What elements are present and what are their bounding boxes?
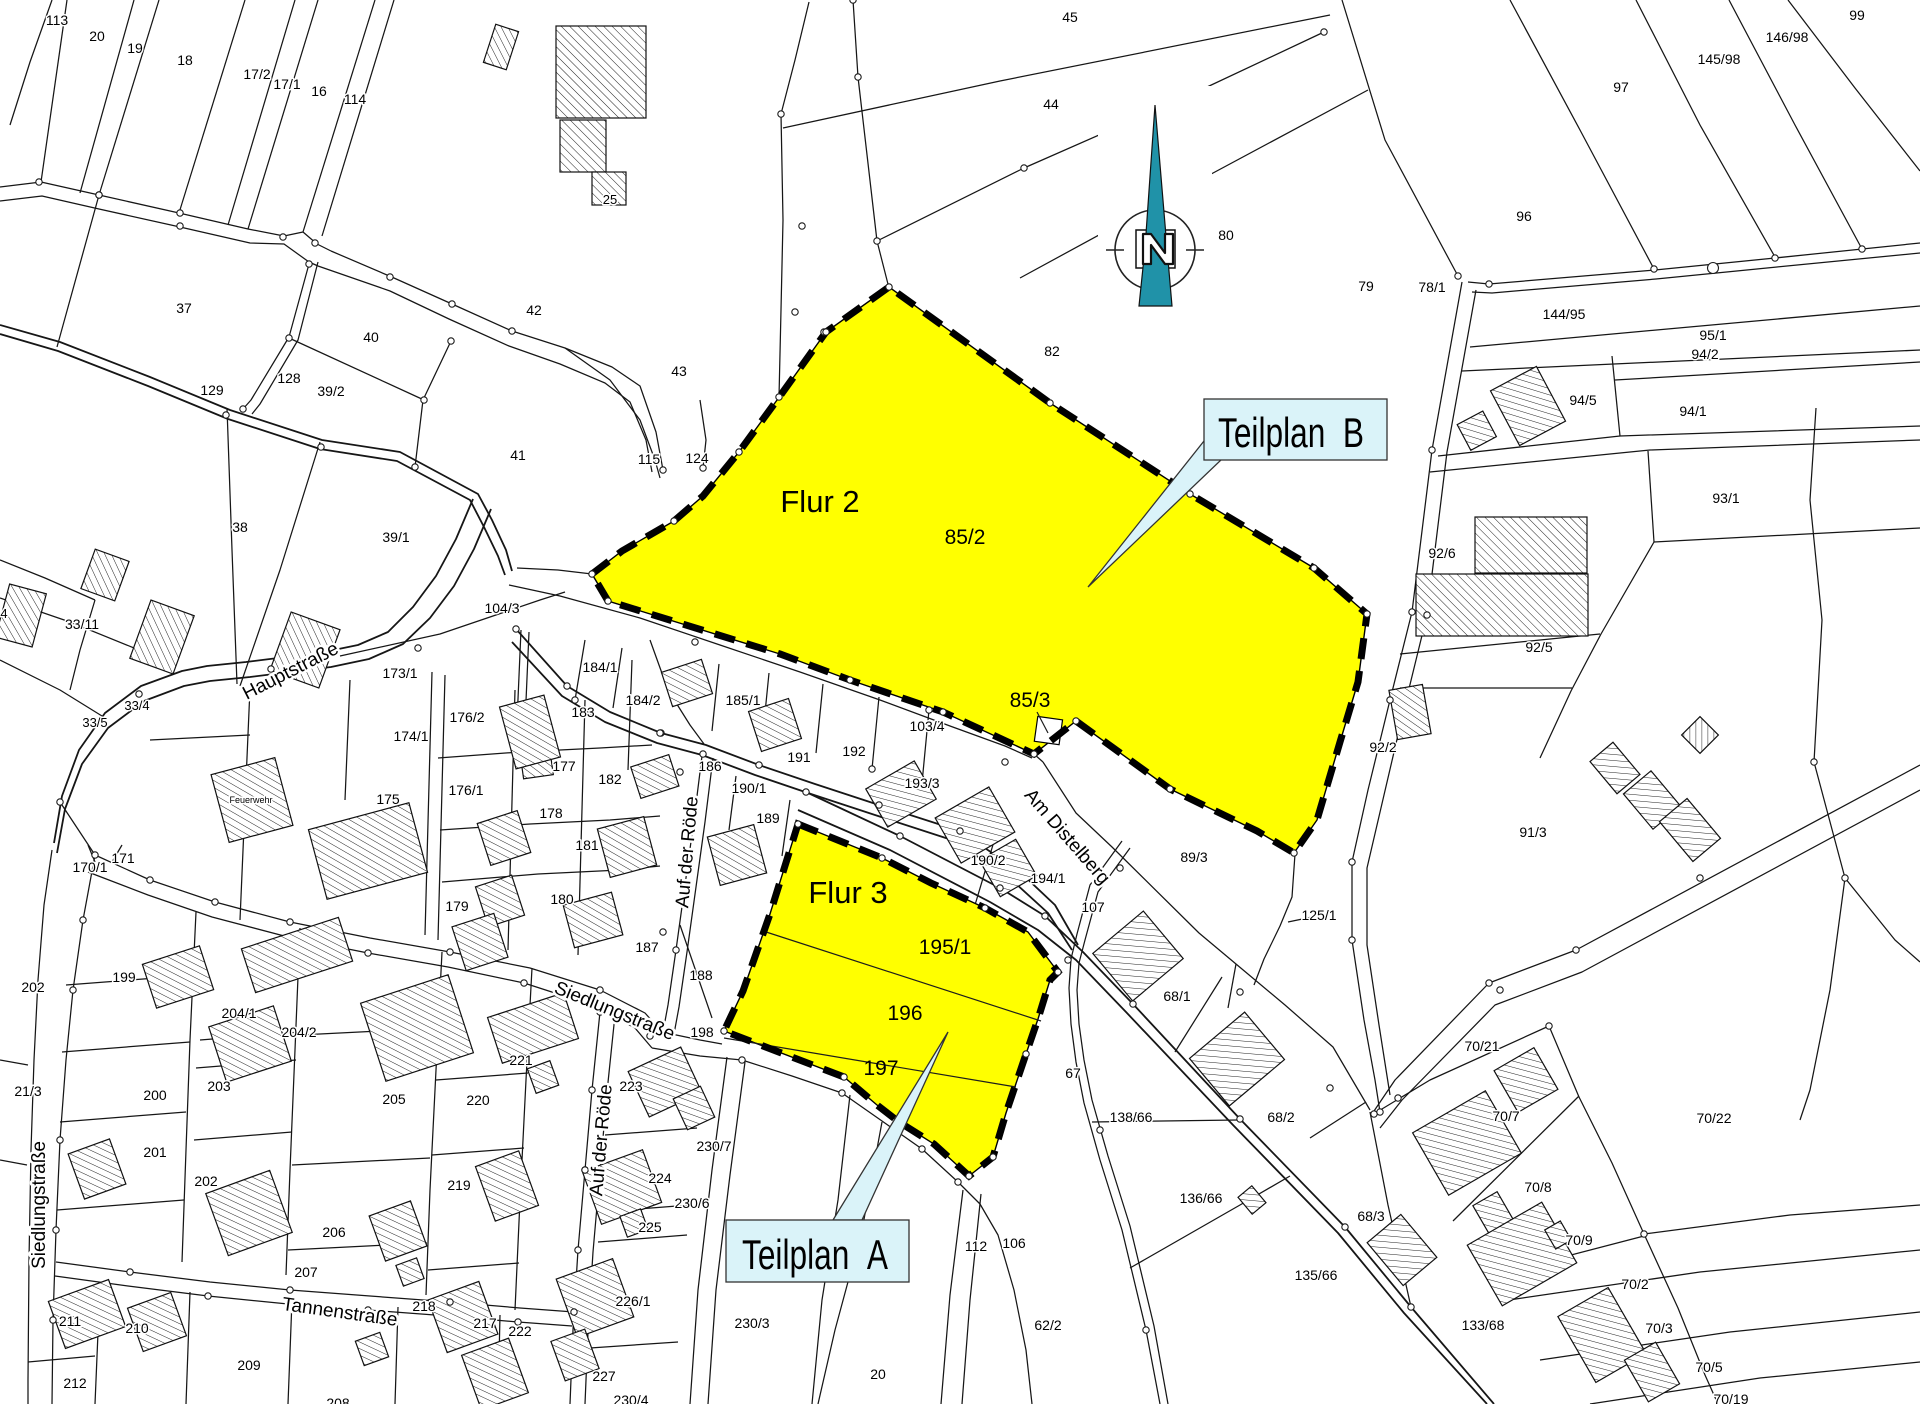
svg-text:39/1: 39/1 bbox=[382, 529, 409, 545]
svg-text:114: 114 bbox=[344, 91, 367, 107]
svg-text:44: 44 bbox=[1043, 96, 1059, 112]
svg-text:199: 199 bbox=[112, 969, 136, 985]
svg-text:80: 80 bbox=[1218, 227, 1234, 243]
svg-text:224: 224 bbox=[648, 1170, 672, 1186]
svg-text:187: 187 bbox=[635, 939, 659, 955]
svg-text:97: 97 bbox=[1613, 79, 1629, 95]
svg-text:230/3: 230/3 bbox=[734, 1315, 769, 1331]
svg-text:135/66: 135/66 bbox=[1295, 1267, 1338, 1283]
svg-text:221: 221 bbox=[509, 1052, 533, 1068]
svg-text:70/22: 70/22 bbox=[1696, 1110, 1731, 1126]
svg-text:144/95: 144/95 bbox=[1543, 306, 1586, 322]
svg-text:211: 211 bbox=[59, 1313, 82, 1329]
svg-text:173/1: 173/1 bbox=[382, 665, 417, 681]
svg-text:112: 112 bbox=[965, 1238, 988, 1254]
svg-text:70/5: 70/5 bbox=[1695, 1359, 1722, 1375]
svg-text:227: 227 bbox=[592, 1368, 616, 1384]
svg-text:91/3: 91/3 bbox=[1519, 824, 1546, 840]
svg-text:33/5: 33/5 bbox=[82, 715, 107, 730]
svg-text:115: 115 bbox=[638, 451, 661, 467]
svg-text:203: 203 bbox=[207, 1078, 231, 1094]
svg-text:174/1: 174/1 bbox=[393, 728, 428, 744]
svg-text:176/2: 176/2 bbox=[449, 709, 484, 725]
svg-text:197: 197 bbox=[863, 1057, 898, 1080]
svg-text:70/2: 70/2 bbox=[1621, 1276, 1648, 1292]
svg-text:184/1: 184/1 bbox=[582, 659, 617, 675]
svg-text:191: 191 bbox=[787, 749, 811, 765]
svg-text:70/3: 70/3 bbox=[1645, 1320, 1672, 1336]
svg-text:Teilplan A: Teilplan A bbox=[742, 1231, 888, 1278]
svg-text:223: 223 bbox=[619, 1078, 643, 1094]
svg-text:70/19: 70/19 bbox=[1713, 1391, 1748, 1404]
svg-text:206: 206 bbox=[322, 1224, 346, 1240]
svg-text:185/1: 185/1 bbox=[725, 692, 760, 708]
svg-text:205: 205 bbox=[382, 1091, 406, 1107]
svg-text:145/98: 145/98 bbox=[1698, 51, 1741, 67]
svg-text:25: 25 bbox=[603, 192, 617, 207]
svg-text:20: 20 bbox=[89, 28, 105, 44]
svg-text:217: 217 bbox=[473, 1315, 497, 1331]
svg-text:138/66: 138/66 bbox=[1110, 1109, 1153, 1125]
svg-text:200: 200 bbox=[143, 1087, 167, 1103]
svg-text:125/1: 125/1 bbox=[1301, 907, 1336, 923]
svg-text:113: 113 bbox=[46, 12, 69, 28]
svg-text:82: 82 bbox=[1044, 343, 1060, 359]
svg-text:175: 175 bbox=[376, 791, 400, 807]
svg-text:133/68: 133/68 bbox=[1462, 1317, 1505, 1333]
svg-text:190/2: 190/2 bbox=[970, 852, 1005, 868]
svg-text:104/3: 104/3 bbox=[484, 600, 519, 616]
svg-text:230/7: 230/7 bbox=[696, 1138, 731, 1154]
svg-text:189: 189 bbox=[756, 810, 780, 826]
svg-text:42: 42 bbox=[526, 302, 542, 318]
svg-text:70/21: 70/21 bbox=[1464, 1038, 1499, 1054]
svg-text:146/98: 146/98 bbox=[1766, 29, 1809, 45]
svg-text:62/2: 62/2 bbox=[1034, 1317, 1061, 1333]
svg-text:195/1: 195/1 bbox=[919, 936, 972, 959]
svg-text:207: 207 bbox=[294, 1264, 318, 1280]
svg-text:45: 45 bbox=[1062, 9, 1078, 25]
svg-text:136/66: 136/66 bbox=[1180, 1190, 1223, 1206]
svg-text:79: 79 bbox=[1358, 278, 1374, 294]
svg-text:4: 4 bbox=[0, 606, 7, 621]
svg-text:40: 40 bbox=[363, 329, 379, 345]
svg-text:226/1: 226/1 bbox=[615, 1293, 650, 1309]
svg-text:94/1: 94/1 bbox=[1679, 403, 1706, 419]
svg-text:33/4: 33/4 bbox=[124, 698, 149, 713]
svg-text:190/1: 190/1 bbox=[731, 780, 766, 796]
svg-text:220: 220 bbox=[466, 1092, 490, 1108]
svg-text:Feuerwehr: Feuerwehr bbox=[229, 795, 272, 805]
svg-text:176/1: 176/1 bbox=[448, 782, 483, 798]
svg-text:212: 212 bbox=[63, 1375, 87, 1391]
svg-text:70/8: 70/8 bbox=[1524, 1179, 1551, 1195]
svg-text:17/1: 17/1 bbox=[273, 76, 300, 92]
svg-text:70/9: 70/9 bbox=[1565, 1232, 1592, 1248]
svg-text:85/3: 85/3 bbox=[1010, 689, 1051, 712]
svg-text:107: 107 bbox=[1081, 899, 1105, 915]
svg-text:39/2: 39/2 bbox=[317, 383, 344, 399]
svg-text:204/1: 204/1 bbox=[221, 1005, 256, 1021]
svg-text:96: 96 bbox=[1516, 208, 1532, 224]
svg-text:Flur 2: Flur 2 bbox=[780, 484, 859, 519]
svg-text:178: 178 bbox=[539, 805, 563, 821]
svg-text:186: 186 bbox=[698, 758, 722, 774]
svg-text:94/2: 94/2 bbox=[1691, 346, 1718, 362]
svg-text:129: 129 bbox=[200, 382, 224, 398]
svg-text:188: 188 bbox=[689, 967, 713, 983]
svg-text:194/1: 194/1 bbox=[1030, 870, 1065, 886]
svg-text:201: 201 bbox=[143, 1144, 167, 1160]
svg-text:225: 225 bbox=[638, 1219, 662, 1235]
svg-text:218: 218 bbox=[412, 1298, 436, 1314]
svg-text:184/2: 184/2 bbox=[625, 692, 660, 708]
svg-text:181: 181 bbox=[575, 837, 599, 853]
svg-text:20: 20 bbox=[870, 1366, 886, 1382]
svg-text:68/1: 68/1 bbox=[1163, 988, 1190, 1004]
svg-text:94/5: 94/5 bbox=[1569, 392, 1596, 408]
svg-text:196: 196 bbox=[887, 1002, 922, 1025]
svg-text:210: 210 bbox=[125, 1320, 149, 1336]
svg-text:38: 38 bbox=[232, 519, 248, 535]
svg-text:92/5: 92/5 bbox=[1525, 639, 1552, 655]
svg-text:192: 192 bbox=[842, 743, 866, 759]
svg-text:202: 202 bbox=[194, 1173, 218, 1189]
svg-text:170/1: 170/1 bbox=[72, 859, 107, 875]
svg-text:103/4: 103/4 bbox=[909, 718, 944, 734]
svg-text:17/2: 17/2 bbox=[243, 66, 270, 82]
svg-text:171: 171 bbox=[111, 850, 135, 866]
svg-text:67: 67 bbox=[1065, 1065, 1081, 1081]
svg-text:208: 208 bbox=[326, 1395, 350, 1404]
svg-text:183: 183 bbox=[571, 704, 595, 720]
svg-text:37: 37 bbox=[176, 300, 192, 316]
svg-text:Flur 3: Flur 3 bbox=[808, 875, 887, 910]
svg-text:85/2: 85/2 bbox=[945, 526, 986, 549]
svg-text:43: 43 bbox=[671, 363, 687, 379]
svg-text:Siedlungstraße: Siedlungstraße bbox=[29, 1141, 50, 1269]
svg-text:21/3: 21/3 bbox=[14, 1083, 41, 1099]
svg-text:230/6: 230/6 bbox=[674, 1195, 709, 1211]
svg-text:106: 106 bbox=[1002, 1235, 1026, 1251]
svg-text:204/2: 204/2 bbox=[281, 1024, 316, 1040]
svg-text:33/11: 33/11 bbox=[65, 616, 99, 632]
svg-text:182: 182 bbox=[598, 771, 622, 787]
svg-text:99: 99 bbox=[1849, 7, 1865, 23]
svg-text:95/1: 95/1 bbox=[1699, 327, 1726, 343]
svg-text:193/3: 193/3 bbox=[904, 775, 939, 791]
svg-text:18: 18 bbox=[177, 52, 193, 68]
svg-text:92/6: 92/6 bbox=[1428, 545, 1455, 561]
svg-text:128: 128 bbox=[277, 370, 301, 386]
svg-text:68/2: 68/2 bbox=[1267, 1109, 1294, 1125]
svg-text:16: 16 bbox=[311, 83, 327, 99]
svg-text:41: 41 bbox=[510, 447, 526, 463]
svg-text:209: 209 bbox=[237, 1357, 261, 1373]
svg-text:180: 180 bbox=[550, 891, 574, 907]
svg-text:179: 179 bbox=[445, 898, 469, 914]
svg-text:230/4: 230/4 bbox=[613, 1392, 648, 1404]
svg-text:202: 202 bbox=[21, 979, 45, 995]
svg-text:222: 222 bbox=[508, 1323, 532, 1339]
svg-text:198: 198 bbox=[690, 1024, 714, 1040]
svg-text:19: 19 bbox=[127, 40, 143, 56]
svg-text:92/2: 92/2 bbox=[1369, 739, 1396, 755]
svg-text:70/7: 70/7 bbox=[1492, 1108, 1519, 1124]
svg-text:177: 177 bbox=[552, 758, 576, 774]
svg-text:78/1: 78/1 bbox=[1418, 279, 1445, 295]
svg-text:Teilplan B: Teilplan B bbox=[1218, 409, 1364, 456]
svg-text:68/3: 68/3 bbox=[1357, 1208, 1384, 1224]
svg-text:124: 124 bbox=[685, 450, 709, 466]
svg-text:89/3: 89/3 bbox=[1180, 849, 1207, 865]
svg-text:93/1: 93/1 bbox=[1712, 490, 1739, 506]
svg-text:219: 219 bbox=[447, 1177, 471, 1193]
